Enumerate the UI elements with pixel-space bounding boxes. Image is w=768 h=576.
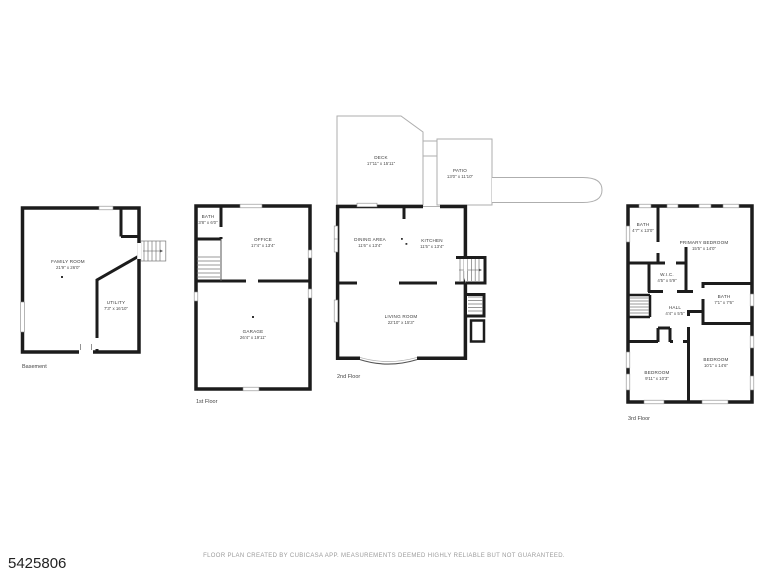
window (194, 292, 198, 301)
floor-label-second: 2nd Floor (337, 374, 360, 380)
garage-door-opening (243, 387, 259, 391)
room-label-kitchen: KITCHEN 11'5" x 13'4" (420, 238, 444, 250)
room-label-deck: DECK 17'11" x 15'11" (367, 155, 395, 167)
floor-label-basement: Basement (22, 364, 47, 370)
marker-dot (61, 276, 63, 278)
marker-dot (401, 238, 403, 240)
basement-stairs (141, 241, 166, 261)
door-opening (79, 350, 93, 354)
door-opening (219, 227, 222, 237)
listing-id: 5425806 (8, 555, 66, 572)
room-label-utility: UTILITY 7'3" x 16'10" (104, 300, 128, 312)
door-opening (137, 243, 141, 259)
room-label-hall: HALL 4'4" x 5'5" (665, 305, 684, 317)
room-label-primary-bedroom: PRIMARY BEDROOM 15'5" x 14'0" (680, 240, 729, 252)
floor-label-third: 3rd Floor (628, 416, 650, 422)
window (308, 289, 312, 298)
chimney-bump (471, 321, 484, 342)
window (308, 250, 312, 258)
footer-disclaimer: FLOOR PLAN CREATED BY CUBICASA APP. MEAS… (0, 553, 768, 559)
door-opening (464, 259, 468, 271)
room-label-bedroom-right: BEDROOM 10'1" x 14'6" (703, 357, 728, 369)
room-label-office: OFFICE 17'4" x 13'4" (251, 237, 275, 249)
room-label-garage: GARAGE 26'4" x 19'11" (240, 329, 266, 341)
window (99, 206, 113, 210)
second-floor-stairs-down (467, 295, 484, 317)
marker-dot (252, 316, 254, 318)
basement-floorplan-drawing (14, 198, 174, 370)
room-label-living-room: LIVING ROOM 22'10" x 15'3" (385, 314, 418, 326)
door-opening (95, 338, 99, 349)
room-label-bath-upper: BATH 4'7" x 13'0" (632, 222, 654, 234)
room-label-family-room: FAMILY ROOM 21'9" x 26'0" (51, 259, 85, 271)
room-label-patio: PATIO 13'0" x 11'10" (447, 168, 473, 180)
window (334, 300, 338, 322)
marker-dot (406, 243, 408, 245)
floor-label-first: 1st Floor (196, 399, 217, 405)
room-label-dining-area: DINING AREA 11'6" x 13'4" (354, 237, 386, 249)
floor-plan-page: FAMILY ROOM 21'9" x 26'0" UTILITY 7'3" x… (0, 0, 768, 576)
room-label-bath-first: BATH 3'8" x 6'0" (198, 214, 217, 226)
first-floor-floorplan-drawing (185, 195, 325, 410)
second-floor-stairs-up (456, 258, 485, 284)
window (357, 203, 377, 207)
window (240, 204, 262, 208)
window (21, 302, 25, 332)
room-label-bath-middle: BATH 7'1" x 7'6" (714, 294, 733, 306)
room-label-wic: W.I.C. 4'5" x 5'9" (657, 272, 676, 284)
room-label-bedroom-left: BEDROOM 9'11" x 10'3" (644, 370, 669, 382)
